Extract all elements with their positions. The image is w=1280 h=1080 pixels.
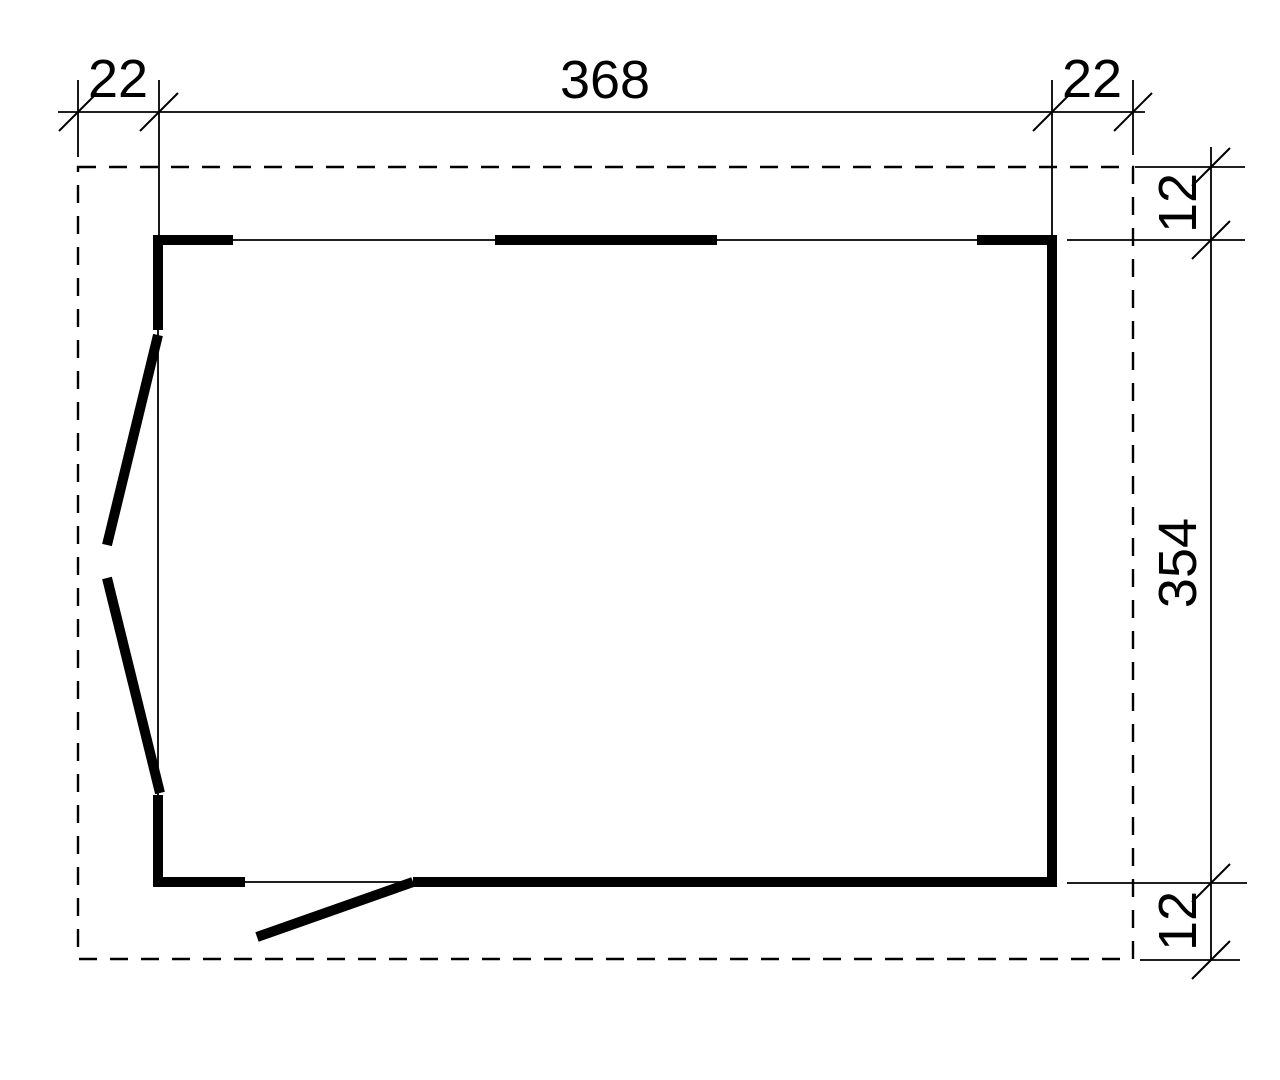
wall-right-and-bottom [413,240,1052,882]
floor-plan-svg: 22 368 22 12 354 12 [0,0,1280,1080]
double-door-leaf-upper [107,335,158,545]
wall-bottom-left-corner [158,795,245,882]
drawing-canvas: 22 368 22 12 354 12 [0,0,1280,1080]
single-door-leaf-bottom [257,882,413,937]
dim-label-right-bottom-overhang: 12 [1148,891,1208,951]
dim-label-top-right-overhang: 22 [1062,49,1122,109]
double-door-leaf-lower [107,578,160,793]
openings [158,240,977,882]
roof-overhang-outline [78,167,1133,959]
walls [158,240,1052,882]
dim-label-width: 368 [560,50,650,110]
doors [107,335,413,937]
dim-label-top-left-overhang: 22 [88,49,148,109]
extension-lines [78,80,1247,960]
dim-label-right-top-overhang: 12 [1148,173,1208,233]
wall-top-left-corner [158,240,233,330]
dimension-labels: 22 368 22 12 354 12 [88,49,1208,951]
dim-label-height: 354 [1148,518,1208,608]
